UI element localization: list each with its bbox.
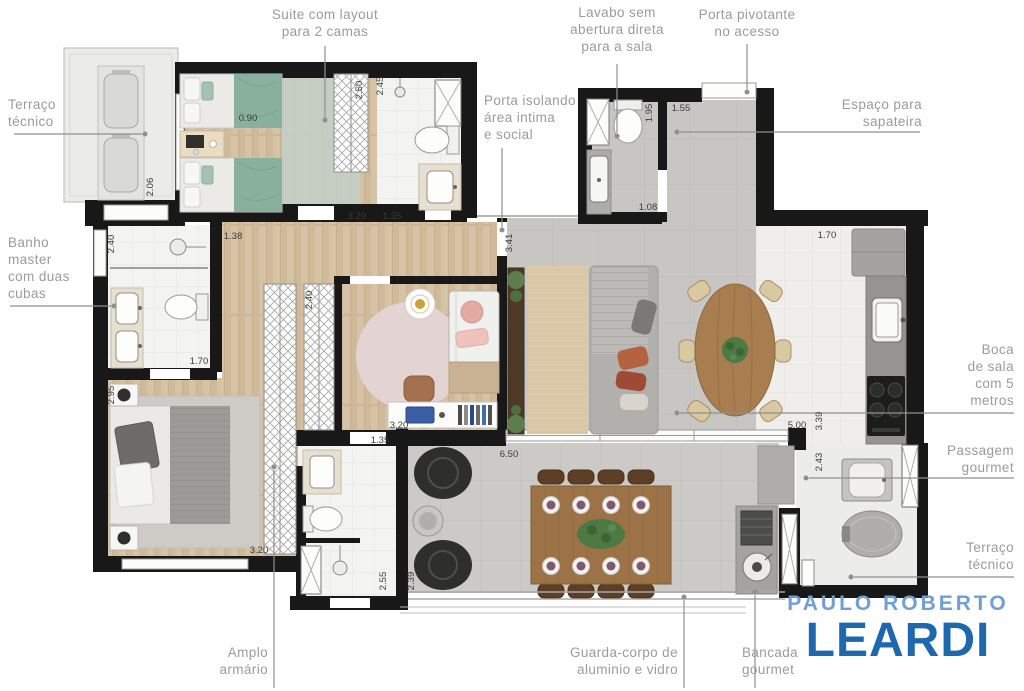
toilet bbox=[165, 295, 197, 319]
callout-line: armário bbox=[198, 661, 268, 678]
dim: 1.38 bbox=[224, 231, 243, 242]
lounge-chair bbox=[414, 447, 472, 499]
callout-line: Boca bbox=[950, 341, 1014, 358]
dim: 1.35 bbox=[383, 211, 402, 222]
callout-line: e social bbox=[484, 126, 584, 143]
floorplan-page: 0.90 2.06 2.50 2.45 3.20 1.35 2.40 1.38 … bbox=[0, 0, 1024, 691]
callout-banho-master: Banho master com duas cubas bbox=[8, 234, 93, 302]
dim: 1.35 bbox=[371, 435, 390, 446]
leader-guarda-corpo bbox=[682, 595, 687, 689]
callout-line: área intima bbox=[484, 109, 584, 126]
passagem-counter bbox=[758, 446, 794, 504]
ac-unit bbox=[104, 138, 138, 192]
dim: 2.40 bbox=[304, 291, 315, 310]
callout-line: Suite com layout bbox=[252, 6, 398, 23]
callout-line: de sala bbox=[950, 358, 1014, 375]
living-furniture bbox=[507, 266, 791, 434]
callout-line: sapateira bbox=[826, 113, 922, 130]
dim: 2.45 bbox=[375, 77, 386, 96]
sink bbox=[116, 331, 138, 362]
dim: 3.20 bbox=[390, 420, 409, 431]
callout-sapateira: Espaço para sapateira bbox=[826, 96, 922, 130]
dim: 1.70 bbox=[190, 356, 209, 367]
callout-terraco-left: Terraço técnico bbox=[8, 96, 80, 130]
dim: 3.20 bbox=[250, 545, 269, 556]
callout-line: Amplo bbox=[198, 644, 268, 661]
shower-head bbox=[395, 87, 405, 97]
callout-lavabo: Lavabo sem abertura direta para a sala bbox=[548, 4, 686, 55]
callout-line: master bbox=[8, 251, 93, 268]
terraco-window bbox=[104, 205, 168, 220]
callout-line: Porta isolando bbox=[484, 92, 584, 109]
callout-guarda-corpo: Guarda-corpo de aluminio e vidro bbox=[556, 644, 678, 678]
terraco-tecnico-top-equipment bbox=[98, 66, 144, 200]
dim: 2.39 bbox=[406, 572, 417, 591]
sink bbox=[310, 456, 334, 488]
callout-line: abertura direta bbox=[548, 21, 686, 38]
dim: 3.41 bbox=[504, 234, 515, 253]
callout-line: Porta pivotante bbox=[674, 6, 820, 23]
dim: 1.70 bbox=[818, 230, 837, 241]
dim: 2.40 bbox=[106, 235, 117, 254]
callout-line: Espaço para bbox=[826, 96, 922, 113]
suite-bed-2 bbox=[180, 158, 282, 212]
callout-line: técnico bbox=[936, 556, 1014, 573]
dim: 2.43 bbox=[814, 453, 825, 472]
dormitorio-furniture bbox=[110, 384, 260, 550]
callout-line: no acesso bbox=[674, 23, 820, 40]
callout-line: técnico bbox=[8, 113, 80, 130]
callout-line: aluminio e vidro bbox=[556, 661, 678, 678]
dim: 1.55 bbox=[672, 103, 691, 114]
hall-floor bbox=[215, 222, 500, 280]
callout-line: com 5 bbox=[950, 375, 1014, 392]
dim: 2.06 bbox=[145, 178, 156, 197]
laptop bbox=[406, 407, 434, 423]
dim: 2.55 bbox=[378, 572, 389, 591]
shower-head bbox=[333, 561, 347, 575]
entry-floor bbox=[667, 100, 757, 226]
callout-passagem: Passagem gourmet bbox=[936, 442, 1014, 476]
toilet bbox=[415, 127, 449, 153]
dim: 3.39 bbox=[814, 412, 825, 431]
callout-line: para 2 camas bbox=[252, 23, 398, 40]
callout-terraco-right: Terraço técnico bbox=[936, 539, 1014, 573]
ac-unit bbox=[104, 74, 138, 128]
sink bbox=[427, 171, 453, 203]
dim: 3.20 bbox=[348, 211, 367, 222]
desk-chair bbox=[404, 376, 434, 402]
shower-head bbox=[170, 239, 186, 255]
logo-line2: LEARDI bbox=[780, 613, 1016, 668]
callout-line: cubas bbox=[8, 285, 93, 302]
callout-line: Lavabo sem bbox=[548, 4, 686, 21]
dim: 1.08 bbox=[639, 202, 658, 213]
callout-amplo-armario: Amplo armário bbox=[198, 644, 268, 678]
callout-line: Terraço bbox=[8, 96, 80, 113]
leardi-logo: PAULO ROBERTO LEARDI bbox=[780, 592, 1016, 668]
callout-line: metros bbox=[950, 392, 1014, 409]
callout-line: Guarda-corpo de bbox=[556, 644, 678, 661]
corridor-floor bbox=[222, 278, 256, 380]
dim: 2.50 bbox=[354, 81, 365, 100]
callout-line: gourmet bbox=[936, 459, 1014, 476]
suite-bed-1 bbox=[180, 74, 282, 128]
toilet bbox=[310, 507, 342, 531]
water-heater bbox=[842, 511, 902, 557]
dim: 6.50 bbox=[500, 449, 519, 460]
dim: 2.95 bbox=[106, 386, 117, 405]
dim: 1.95 bbox=[644, 104, 655, 123]
callout-boca-sala: Boca de sala com 5 metros bbox=[950, 341, 1014, 409]
dim: 5.00 bbox=[788, 420, 807, 431]
callout-line: Passagem bbox=[936, 442, 1014, 459]
callout-suite: Suite com layout para 2 camas bbox=[252, 6, 398, 40]
living-rug bbox=[527, 266, 588, 434]
callout-line: com duas bbox=[8, 268, 93, 285]
banho-window bbox=[94, 230, 106, 276]
dim: 0.90 bbox=[239, 113, 258, 124]
callout-porta-pivotante: Porta pivotante no acesso bbox=[674, 6, 820, 40]
callout-line: Banho bbox=[8, 234, 93, 251]
sink bbox=[116, 293, 138, 324]
pillow bbox=[114, 462, 154, 508]
grill bbox=[741, 511, 772, 545]
callout-line: para a sala bbox=[548, 38, 686, 55]
callout-porta-isolando: Porta isolando área intima e social bbox=[484, 92, 584, 143]
dormitorio-window bbox=[122, 559, 248, 569]
lounge-chair bbox=[414, 540, 472, 590]
callout-line: Terraço bbox=[936, 539, 1014, 556]
